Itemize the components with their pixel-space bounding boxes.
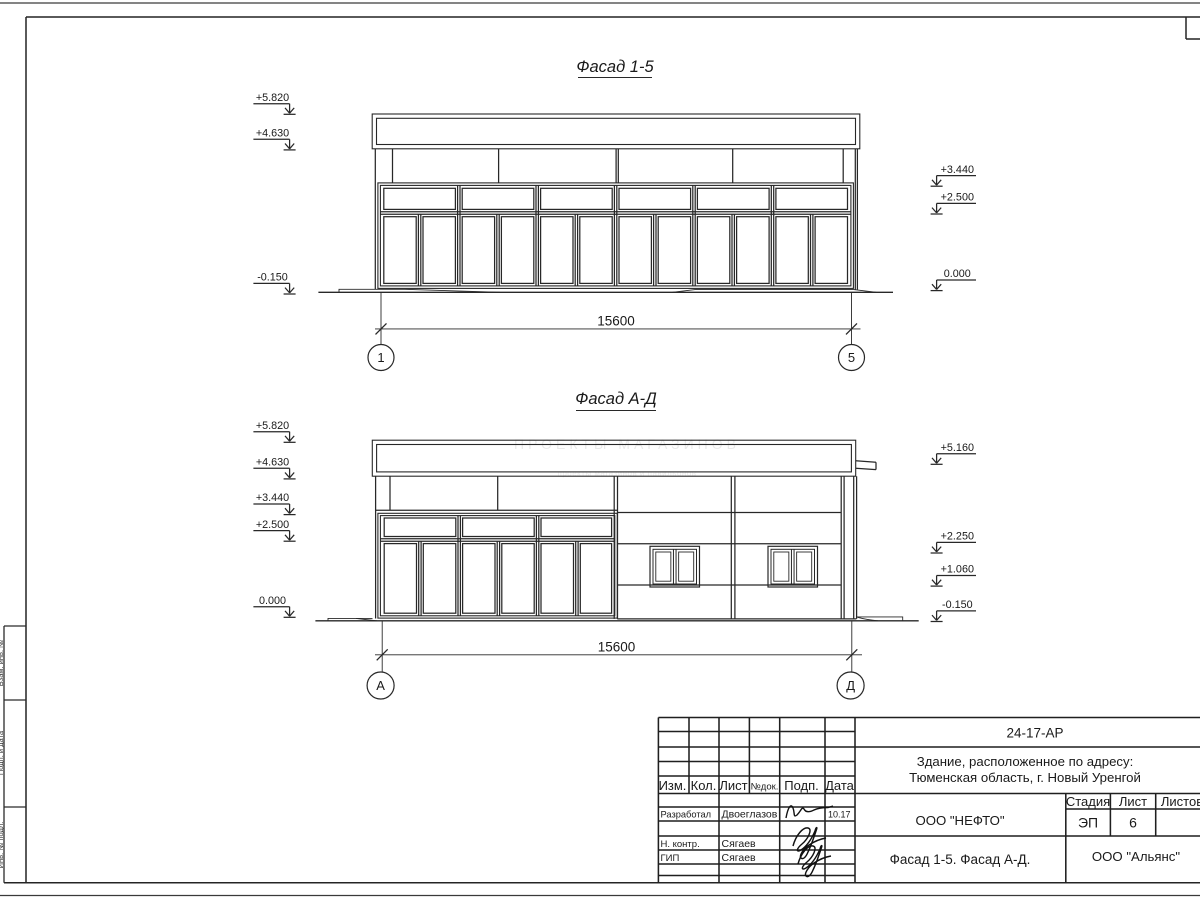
svg-text:+5.160: +5.160: [941, 442, 974, 454]
svg-text:Д: Д: [846, 678, 855, 693]
svg-text:+2.500: +2.500: [256, 519, 289, 531]
svg-text:15600: 15600: [597, 314, 635, 329]
svg-text:+4.630: +4.630: [256, 457, 289, 469]
svg-text:+2.500: +2.500: [941, 192, 974, 204]
svg-text:+5.820: +5.820: [256, 420, 289, 432]
svg-text:0.000: 0.000: [259, 595, 286, 607]
svg-text:ООО "НЕФТО": ООО "НЕФТО": [915, 813, 1004, 828]
svg-text:Н. контр.: Н. контр.: [661, 839, 700, 850]
svg-text:Взам. инв. №: Взам. инв. №: [0, 640, 5, 686]
svg-text:Подп.: Подп.: [784, 778, 819, 793]
svg-text:+4.630: +4.630: [256, 128, 289, 140]
svg-text:А: А: [376, 678, 385, 693]
svg-text:Подп. и дата: Подп. и дата: [0, 730, 5, 775]
svg-text:Фасад 1-5. Фасад А-Д.: Фасад 1-5. Фасад А-Д.: [890, 852, 1031, 867]
svg-text:Двоеглазов: Двоеглазов: [722, 809, 778, 821]
svg-text:№док.: №док.: [751, 782, 779, 793]
svg-text:Сягаев: Сягаев: [722, 852, 757, 864]
svg-text:Листов: Листов: [1161, 794, 1200, 809]
svg-text:Кол.: Кол.: [691, 778, 717, 793]
svg-text:+3.440: +3.440: [256, 492, 289, 504]
svg-text:Инв. № подл.: Инв. № подл.: [0, 822, 5, 869]
svg-text:ООО "Альянс": ООО "Альянс": [1092, 849, 1180, 864]
svg-text:1: 1: [377, 350, 384, 365]
svg-text:ЭП: ЭП: [1078, 815, 1098, 831]
svg-text:+2.250: +2.250: [941, 531, 974, 543]
svg-text:Дата: Дата: [825, 778, 855, 793]
svg-text:Изм.: Изм.: [659, 778, 687, 793]
svg-text:+3.440: +3.440: [941, 164, 974, 176]
svg-text:+5.820: +5.820: [256, 92, 289, 104]
svg-text:Здание, расположенное по адрес: Здание, расположенное по адресу:: [917, 754, 1134, 769]
svg-text:24-17-АР: 24-17-АР: [1006, 726, 1063, 741]
svg-text:Лист: Лист: [1119, 794, 1147, 809]
svg-text:Сягаев: Сягаев: [722, 838, 757, 850]
svg-text:15600: 15600: [598, 640, 636, 655]
svg-text:0.000: 0.000: [944, 268, 971, 280]
svg-text:Фасад 1-5: Фасад 1-5: [576, 58, 654, 76]
svg-text:10.17: 10.17: [828, 810, 851, 820]
svg-text:Разработал: Разработал: [661, 810, 712, 820]
svg-text:Тюменская область, г. Новый Ур: Тюменская область, г. Новый Уренгой: [909, 770, 1141, 785]
svg-text:-0.150: -0.150: [257, 272, 288, 284]
svg-text:6: 6: [1129, 815, 1137, 831]
svg-text:Стадия: Стадия: [1066, 794, 1110, 809]
svg-text:Фасад А-Д: Фасад А-Д: [575, 390, 657, 408]
svg-text:-0.150: -0.150: [942, 599, 973, 611]
svg-text:Лист: Лист: [719, 778, 747, 793]
svg-text:5: 5: [848, 350, 855, 365]
svg-text:+1.060: +1.060: [941, 564, 974, 576]
svg-text:ГИП: ГИП: [661, 853, 680, 864]
